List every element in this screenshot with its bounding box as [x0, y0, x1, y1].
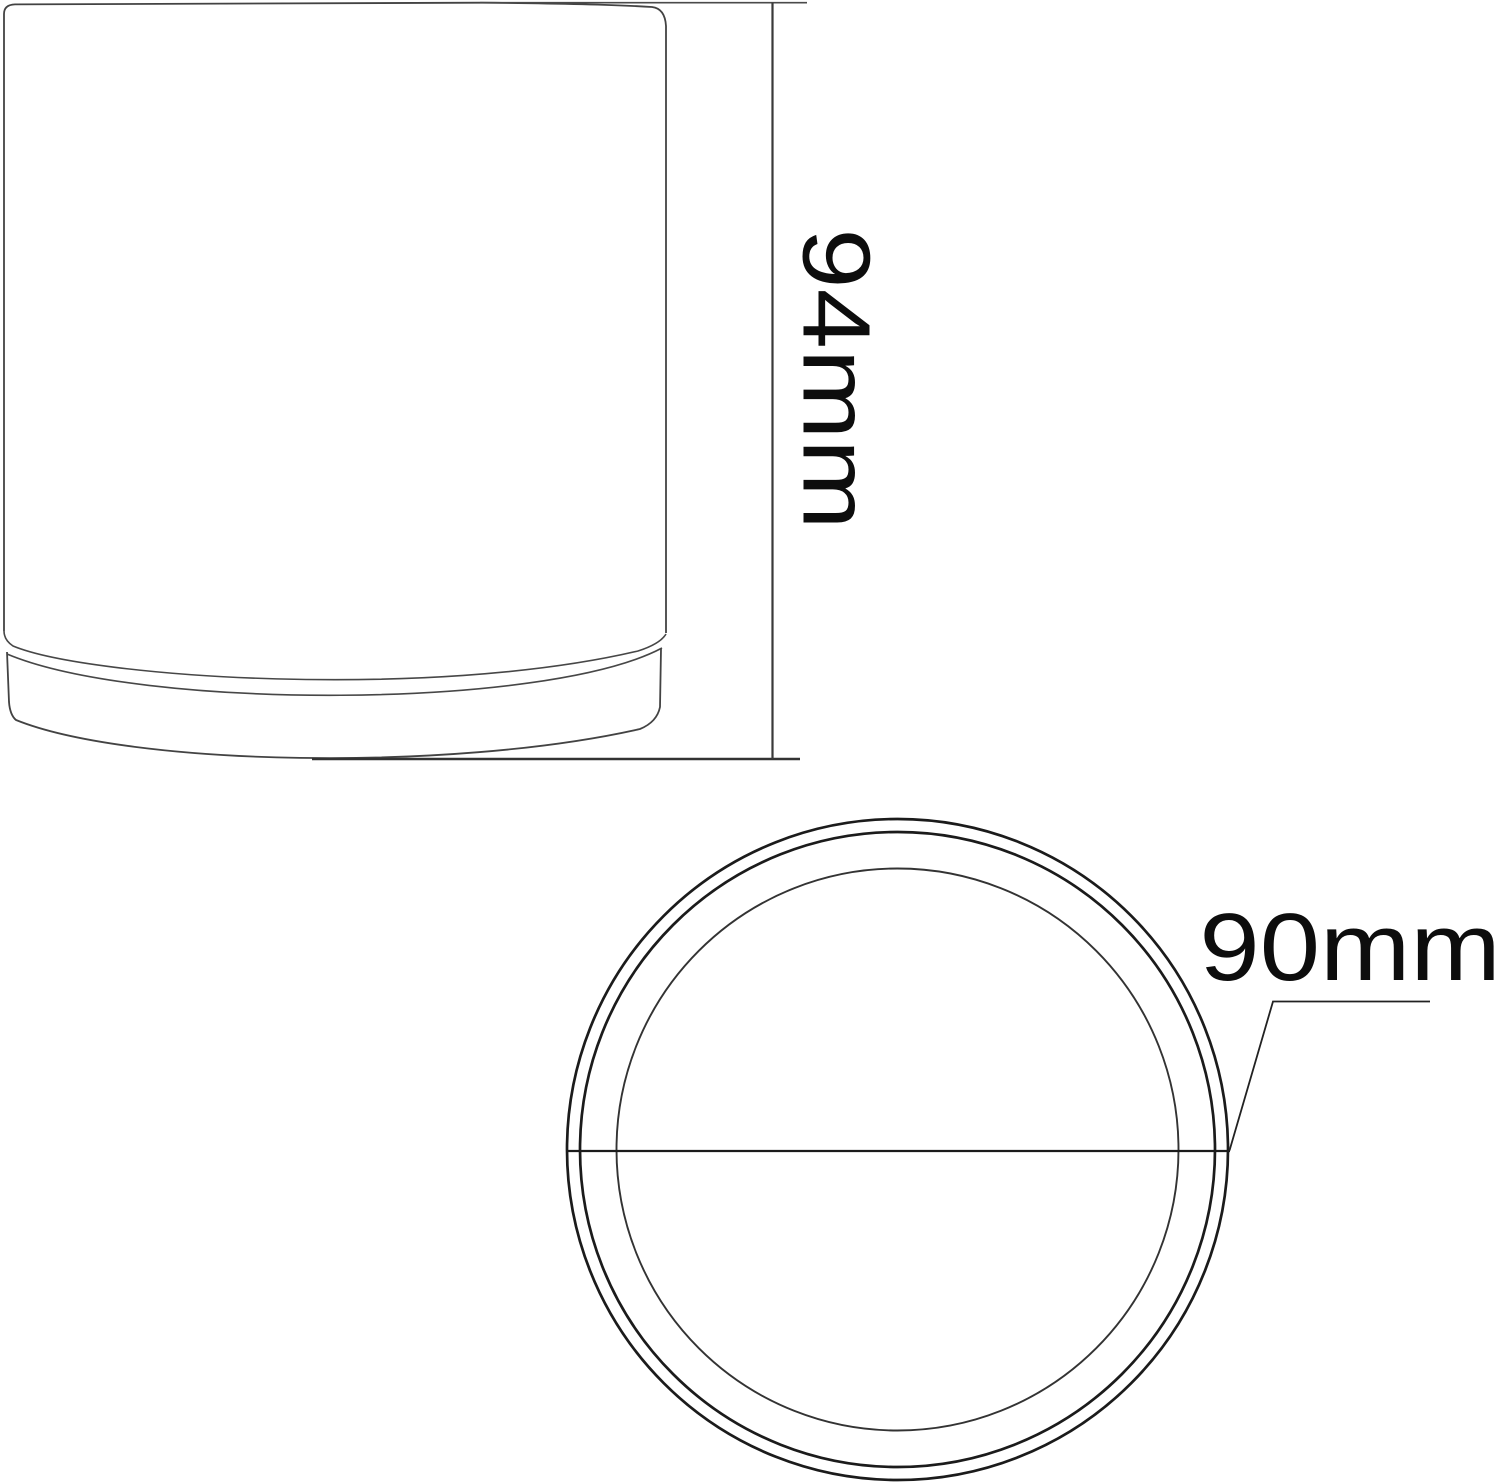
svg-text:94mm: 94mm [783, 228, 891, 529]
svg-text:90mm: 90mm [1199, 893, 1500, 1001]
